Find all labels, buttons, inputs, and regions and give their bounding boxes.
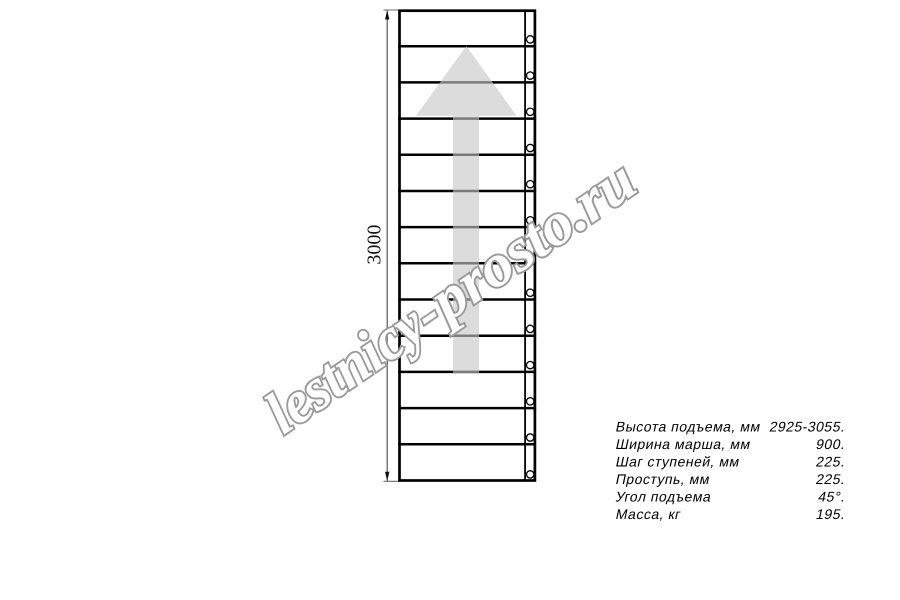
svg-text:225.: 225. [815,454,848,470]
svg-text:Шаг ступеней, мм: Шаг ступеней, мм [614,454,741,470]
svg-text:Ширина марша, мм: Ширина марша, мм [614,436,752,452]
svg-text:Масса, кг: Масса, кг [614,506,682,522]
svg-text:Высота подъема, мм: Высота подъема, мм [614,419,762,435]
svg-text:2925-3055.: 2925-3055. [768,419,847,435]
svg-text:Проступь, мм: Проступь, мм [614,471,711,487]
svg-text:lestnicy-: lestnicy- [253,280,453,446]
svg-text:195.: 195. [815,506,848,522]
svg-text:225.: 225. [815,471,848,487]
svg-text:900.: 900. [815,436,848,452]
svg-text:Угол подъема: Угол подъема [614,489,713,505]
svg-text:45°.: 45°. [817,489,847,505]
svg-text:3000: 3000 [363,225,385,265]
